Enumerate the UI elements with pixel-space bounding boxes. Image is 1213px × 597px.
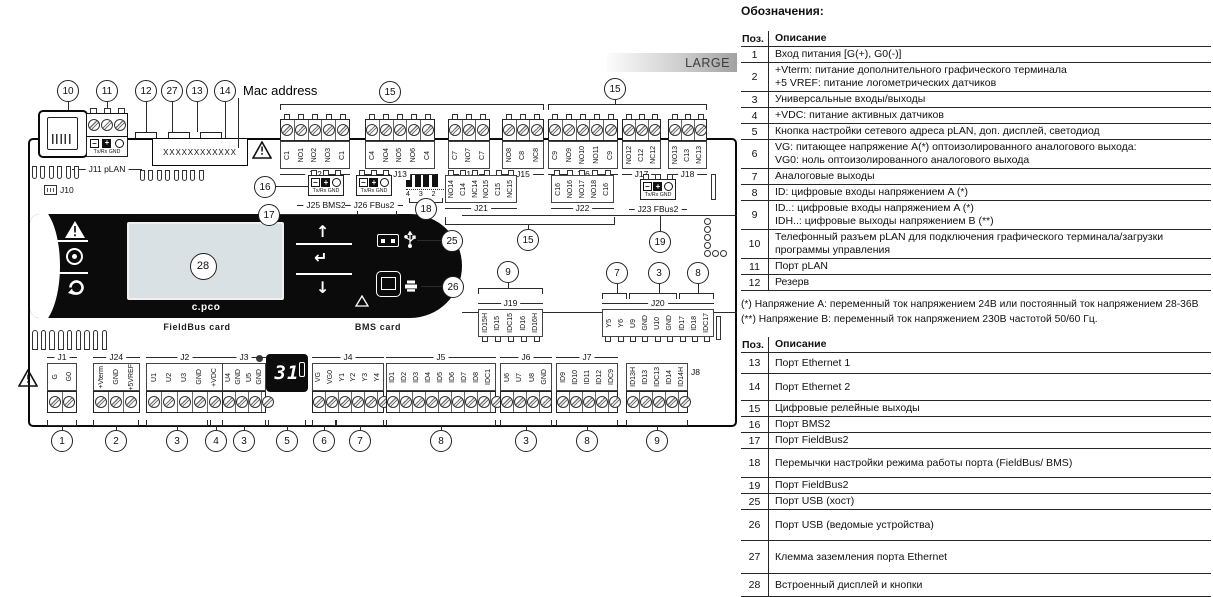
connector-name: J7 <box>556 352 618 363</box>
legend-desc: Кнопка настройки сетевого адреса pLAN, д… <box>769 124 1211 139</box>
pin-label: NO4 <box>380 142 394 168</box>
screw-terminal <box>465 396 477 408</box>
callout-11: 11 <box>96 80 118 102</box>
pin-label: ID3 <box>411 364 423 390</box>
pin-tab <box>626 114 632 119</box>
callout-3: 3 <box>233 430 255 452</box>
connector-name-text: J3 <box>237 352 252 363</box>
legend-row: 19Порт FieldBus2 <box>741 478 1211 494</box>
screw-cell <box>308 120 322 140</box>
pin-label: NO11 <box>590 142 604 168</box>
pin-labels: +VtermGND+5VREF <box>93 363 140 391</box>
legend-table-1: Поз. Описание 1Вход питания [G(+), G0(-)… <box>741 31 1211 291</box>
pin-label: C15 <box>493 176 505 202</box>
screw-cell <box>595 392 608 412</box>
screw-terminal <box>570 396 582 408</box>
comm-icons: −+ <box>358 178 390 187</box>
pin-label-text: U1 <box>151 373 158 382</box>
pin-label: C16 <box>601 176 613 202</box>
pin-label-text: NO10 <box>579 146 586 164</box>
connector-name: J22 <box>551 203 614 214</box>
pin-tab <box>397 114 403 119</box>
printer-icon <box>404 280 418 292</box>
screw-cell <box>529 120 543 140</box>
pin-tab <box>630 337 636 342</box>
legend-desc: VG: питающее напряжение A(*) оптоизолиро… <box>769 140 1211 168</box>
pin-label: GND <box>664 310 676 336</box>
pin-label-text: IDC15 <box>507 313 514 333</box>
pin-label: NC14 <box>469 176 481 202</box>
pin-tab <box>495 337 501 342</box>
pin-label-text: NO11 <box>593 146 600 164</box>
legend-panel: Обозначения: Поз. Описание 1Вход питания… <box>741 2 1211 597</box>
pin-label: U8 <box>526 364 539 390</box>
screw-cell <box>335 120 349 140</box>
vent-slot <box>32 330 38 350</box>
pin-label-text: ID14 <box>666 370 673 385</box>
pin-label: +Vterm <box>94 364 109 390</box>
terminal-block-J1: J1GG0 <box>47 352 77 413</box>
connector-name-text: J13 <box>390 169 410 180</box>
pin-label: ID16H <box>529 310 542 336</box>
connector-icon <box>44 185 57 195</box>
screw-cell <box>281 120 294 140</box>
legend-pos: 10 <box>741 230 769 258</box>
pin-label: GND <box>109 364 124 390</box>
screw-cell <box>406 120 420 140</box>
pin-tab <box>425 114 431 119</box>
pin-label-text: C8 <box>519 151 526 160</box>
screw-terminal <box>352 396 364 408</box>
pin-label: ID13H <box>627 364 639 390</box>
pin-label-text: ID4 <box>425 372 432 383</box>
warning-triangle-icon <box>252 141 272 159</box>
connector-name: J6 <box>500 352 552 363</box>
pin-label-text: +VDC <box>211 368 218 387</box>
bracket <box>336 420 384 426</box>
bracket <box>548 104 707 110</box>
terminal-block-J5: J5ID1ID2ID3ID4ID5ID6ID7ID8IDC1 <box>386 352 496 413</box>
bracket <box>556 420 618 426</box>
pin-tab <box>359 170 365 175</box>
led-indicator <box>712 250 719 257</box>
legend-row: 2+Vterm: питание дополнительного графиче… <box>741 63 1211 92</box>
pin-tabs <box>668 114 707 119</box>
pin-tab <box>580 114 586 119</box>
txrx-gnd-label: Tx/Rx GND <box>311 188 341 194</box>
screw-terminal <box>413 396 425 408</box>
pin-label: NO10 <box>576 142 590 168</box>
vent-slot <box>174 170 179 181</box>
legend-desc: Порт Ethernet 2 <box>769 380 1211 395</box>
pin-tab <box>655 337 661 342</box>
pin-label-text: IDC17 <box>703 313 710 333</box>
legend-pos: 5 <box>741 124 769 139</box>
bracket <box>146 420 208 426</box>
bracket <box>386 420 496 426</box>
legend-row: 5Кнопка настройки сетевого адреса pLAN, … <box>741 124 1211 140</box>
connector-name: J20 <box>602 298 714 309</box>
legend-pos: 11 <box>741 259 769 274</box>
pin-label-text: C12 <box>638 149 645 162</box>
screw-cell <box>420 120 434 140</box>
pin-tab <box>460 170 466 175</box>
legend-pos: 4 <box>741 108 769 123</box>
screw-row <box>448 119 490 141</box>
address-button <box>299 362 305 377</box>
controller-diagram: LARGE Mac address J10 − + Tx/Rx GND J11 … <box>0 0 740 584</box>
rj11-contacts <box>52 134 72 144</box>
pin-label-text: ID15 <box>494 316 501 331</box>
screw-terminal <box>477 124 489 136</box>
pin-label-text: ID13H <box>630 367 637 387</box>
pin-label: U1 <box>147 364 162 390</box>
pin-tab <box>482 337 488 342</box>
screw-terminal <box>531 124 543 136</box>
pin-label-text: U2 <box>166 373 173 382</box>
legend-pos: 16 <box>741 417 769 432</box>
screw-terminal <box>281 124 293 136</box>
pin-label: NO3 <box>322 142 336 168</box>
screw-terminal <box>387 396 399 408</box>
screw-row <box>548 119 618 141</box>
pin-label-text: NO12 <box>626 146 633 164</box>
screw-cell <box>449 120 462 140</box>
screw-row <box>502 119 544 141</box>
screw-cell <box>562 120 576 140</box>
pin-tab <box>383 114 389 119</box>
pin-label: NO7 <box>462 142 475 168</box>
pin-label: U3 <box>177 364 192 390</box>
pin-labels: C7NO7C7 <box>448 141 490 169</box>
legend-desc: Порт FieldBus2 <box>769 478 1211 493</box>
pin-label-text: Y6 <box>618 319 625 328</box>
pin-tab <box>579 170 585 175</box>
pin-label: GND <box>539 364 552 390</box>
bms-card-label: BMS card <box>328 322 428 332</box>
pin-tab <box>534 114 540 119</box>
address-digits: 31 <box>275 362 300 384</box>
connector-name-text: J18 <box>678 169 698 180</box>
pin-label-text: GND <box>256 369 263 385</box>
warning-triangle-small-icon <box>355 295 369 307</box>
pin-tabs <box>308 170 344 175</box>
screw-cell <box>94 392 108 412</box>
pin-label: ID10 <box>569 364 581 390</box>
screw-terminal <box>653 396 665 408</box>
screw-terminal <box>557 396 569 408</box>
pin-label: ID7 <box>459 364 471 390</box>
screw-terminal <box>380 124 392 136</box>
legend-pos: 18 <box>741 449 769 477</box>
screw-cell <box>475 120 489 140</box>
vent-slot <box>199 170 204 181</box>
pin-label-text: NO8 <box>506 148 513 162</box>
legend-desc: Порт USB (ведомые устройства) <box>769 518 1211 533</box>
pin-label-text: GND <box>642 315 649 331</box>
legend-pos: 26 <box>741 510 769 540</box>
legend-table-1-rows: 1Вход питания [G(+), G0(-)]2+Vterm: пита… <box>741 47 1211 291</box>
screw-cell <box>526 392 539 412</box>
screw-cell <box>207 392 222 412</box>
screw-cell <box>464 392 477 412</box>
pin-label-text: C1 <box>284 151 291 160</box>
legend-pos: 15 <box>741 401 769 416</box>
callout-3: 3 <box>648 262 670 284</box>
screw-terminal <box>110 396 122 408</box>
screw-terminal <box>88 119 100 131</box>
legend-row: 9ID..: цифровые входы напряжением A (*)I… <box>741 201 1211 230</box>
legend-row: 13Порт Ethernet 1 <box>741 353 1211 374</box>
vent-slot <box>49 330 55 350</box>
pin-tab <box>618 337 624 342</box>
pin-label-text: NO3 <box>325 148 332 162</box>
minus-icon: − <box>90 139 99 148</box>
pin-tab <box>521 337 527 342</box>
legend-row: 27Клемма заземления порта Ethernet <box>741 541 1211 574</box>
pin-label-text: VG0 <box>327 370 334 384</box>
pin-label-text: Y5 <box>606 319 613 328</box>
terminal-block-J22: C16NO16NO17NO18C16J22 <box>551 170 614 214</box>
pin-tab <box>506 114 512 119</box>
pin-tab <box>480 114 486 119</box>
pin-label: Y5 <box>603 310 615 336</box>
pin-label: U5 <box>244 364 255 390</box>
legend-pos: 7 <box>741 169 769 184</box>
vent-slot <box>140 170 145 181</box>
pin-label-text: NO4 <box>383 148 390 162</box>
pin-label-text: U4 <box>225 373 232 382</box>
pin-labels: NO13C13NC13 <box>668 141 707 169</box>
screw-cell <box>161 392 176 412</box>
pin-label: Y3 <box>360 364 372 390</box>
legend-pos: 6 <box>741 140 769 168</box>
pin-label-text: NO15 <box>483 180 490 198</box>
terminal-block-J8: ID13HID13IDC13ID14ID14H <box>626 352 688 413</box>
pin-label: +VDC <box>207 364 222 390</box>
pin-tab <box>566 114 572 119</box>
vent-slot <box>190 170 195 181</box>
pin-label-text: Y4 <box>374 373 381 382</box>
screw-cell <box>477 392 490 412</box>
screw-terminal <box>326 396 338 408</box>
pin-labels: U4GNDU5GND <box>222 363 266 391</box>
pin-label-text: C9 <box>552 151 559 160</box>
callout-15: 15 <box>379 81 401 103</box>
vent-slot <box>74 166 79 179</box>
pin-tab <box>340 114 346 119</box>
pin-label: C1 <box>281 142 295 168</box>
leader-line <box>238 98 239 148</box>
pin-tab <box>508 170 514 175</box>
pin-label: NC12 <box>648 142 660 168</box>
pin-label-text: ID5 <box>437 372 444 383</box>
shield-circle-icon <box>332 178 341 187</box>
leader-line <box>107 102 108 108</box>
screw-cell <box>321 120 335 140</box>
edge-tab <box>135 132 157 138</box>
vent-slot <box>57 166 62 179</box>
connector-name-text: J19 <box>501 298 521 309</box>
pin-label: ID13 <box>639 364 651 390</box>
legend-row: 6VG: питающее напряжение A(*) оптоизолир… <box>741 140 1211 169</box>
screw-terminal <box>223 396 235 408</box>
pin-label: Y6 <box>615 310 627 336</box>
pin-labels: U1U2U3GND+VDC <box>146 363 224 391</box>
screw-terminal <box>323 124 335 136</box>
screw-terminal <box>366 124 378 136</box>
callout-6: 6 <box>313 430 335 452</box>
pin-label: C16 <box>552 176 564 202</box>
screw-terminal <box>236 396 248 408</box>
pin-tab <box>608 114 614 119</box>
pin-label-text: C7 <box>452 151 459 160</box>
pin-tabs <box>622 114 661 119</box>
led-indicator <box>704 250 711 257</box>
screw-terminal <box>669 124 681 136</box>
screw-cell <box>351 392 364 412</box>
screw-cell <box>516 120 530 140</box>
pin-label: IDC9 <box>605 364 617 390</box>
screw-cell <box>412 392 425 412</box>
panel-crescent <box>30 214 60 318</box>
pin-label: IDC1 <box>483 364 495 390</box>
screw-cell <box>338 392 351 412</box>
pin-label-text: NO14 <box>448 180 455 198</box>
pin-label: C8 <box>516 142 529 168</box>
screw-terminal <box>394 124 406 136</box>
comm-body: −+Tx/Rx GND <box>308 175 344 196</box>
pin-label-text: ID10 <box>572 370 579 385</box>
pin-label-text: Y3 <box>362 373 369 382</box>
pin-tabs <box>478 337 543 342</box>
jumper-numbers: 4 3 2 1 <box>406 191 444 198</box>
legend-desc: ID..: цифровые входы напряжением A (*)ID… <box>769 201 1211 229</box>
pin-labels: GG0 <box>47 363 77 391</box>
connector-name-text: J22 <box>573 203 593 214</box>
legend-row: 28Встроенный дисплей и кнопки <box>741 574 1211 597</box>
legend-pos: 17 <box>741 433 769 448</box>
pin-label: ID17 <box>676 310 688 336</box>
bracket <box>222 420 266 426</box>
pin-label-text: GND <box>196 369 203 385</box>
led-indicator <box>720 250 727 257</box>
pin-tab <box>594 114 600 119</box>
bracket <box>268 420 306 426</box>
pin-label-text: NO2 <box>311 148 318 162</box>
pin-tab <box>496 170 502 175</box>
terminal-block-J18: NO13C13NC13J18 <box>668 114 707 180</box>
pin-label: NO8 <box>503 142 516 168</box>
pin-label: ID11 <box>581 364 593 390</box>
screw-terminal <box>114 119 126 131</box>
screw-terminal <box>609 396 621 408</box>
screw-cell <box>623 120 635 140</box>
connector-name: J19 <box>478 298 543 309</box>
vent-slot <box>66 166 71 179</box>
screw-terminal <box>194 396 206 408</box>
screw-terminal <box>313 396 325 408</box>
pin-label-text: NO5 <box>396 148 403 162</box>
pin-tabs <box>448 114 490 119</box>
bracket <box>626 420 688 426</box>
vent-slot <box>165 170 170 181</box>
screw-terminal <box>623 124 635 136</box>
pin-label-text: C14 <box>460 183 467 196</box>
screw-terminal <box>649 124 661 136</box>
pin-label: GND <box>234 364 245 390</box>
fieldbus-card-label: FieldBus card <box>147 322 247 332</box>
legend-row: 8ID: цифровые входы напряжением A (*) <box>741 185 1211 201</box>
pin-label-text: GND <box>113 369 120 385</box>
pin-label-text: U8 <box>529 373 536 382</box>
callout-25: 25 <box>441 230 463 252</box>
screw-cell <box>678 392 691 412</box>
screw-cell <box>503 120 516 140</box>
pin-labels: VGVG0Y1Y2Y3Y4 <box>312 363 384 391</box>
connector-name-text: J25 BMS2 <box>303 200 348 211</box>
pin-label: NC15 <box>504 176 516 202</box>
screw-cell <box>539 392 552 412</box>
callout-10: 10 <box>57 80 79 102</box>
pin-tab <box>605 170 611 175</box>
screw-cell <box>549 120 562 140</box>
led-indicator <box>704 242 711 249</box>
screw-terminal <box>501 396 513 408</box>
pin-label: C4 <box>420 142 434 168</box>
screw-cell <box>639 392 652 412</box>
pin-label: ID15H <box>479 310 492 336</box>
pin-label: C9 <box>603 142 617 168</box>
pin-label: NC13 <box>694 142 706 168</box>
pin-tab <box>371 170 377 175</box>
legend-row: 1Вход питания [G(+), G0(-)] <box>741 47 1211 63</box>
pin-label: ID14H <box>675 364 687 390</box>
pin-label: Y2 <box>348 364 360 390</box>
pin-label-text: NO6 <box>410 148 417 162</box>
callout-3: 3 <box>166 430 188 452</box>
vent-slot <box>102 330 108 350</box>
pin-label-text: ID17 <box>679 316 686 331</box>
pin-tab <box>284 114 290 119</box>
terminal-block-J4: J4VGVG0Y1Y2Y3Y4 <box>312 352 384 413</box>
pin-label: ID9 <box>557 364 569 390</box>
mac-address-label: Mac address <box>243 83 317 98</box>
screw-terminal <box>148 396 160 408</box>
screw-row <box>622 119 661 141</box>
legend-pos: 1 <box>741 47 769 62</box>
callout-7: 7 <box>349 430 371 452</box>
pin-label: C4 <box>366 142 380 168</box>
screw-row <box>312 391 384 413</box>
pin-tab <box>335 170 341 175</box>
pin-label-text: U3 <box>181 373 188 382</box>
pin-label-text: NO7 <box>465 148 472 162</box>
pin-tab <box>652 114 658 119</box>
screw-terminal <box>125 396 137 408</box>
led-indicator <box>704 234 711 241</box>
callout-19: 19 <box>649 231 671 253</box>
screw-cell <box>48 392 62 412</box>
legend-pos: 19 <box>741 478 769 493</box>
vent-slot <box>93 330 99 350</box>
screw-cell <box>364 392 377 412</box>
screw-cell <box>694 120 707 140</box>
screw-terminal <box>95 396 107 408</box>
pin-label-text: U5 <box>246 373 253 382</box>
legend-row: 4+VDC: питание активных датчиков <box>741 108 1211 124</box>
pin-tab <box>311 170 317 175</box>
